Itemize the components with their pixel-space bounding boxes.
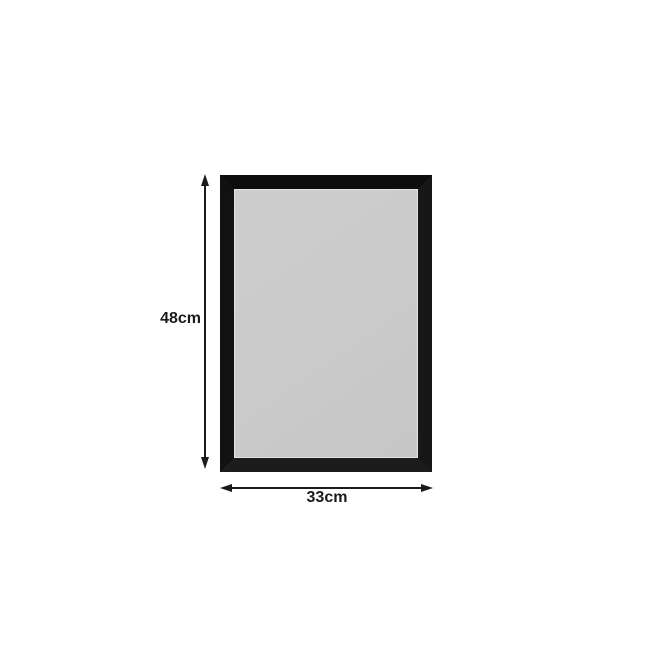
product-dimension-diagram: 48cm 33cm xyxy=(0,0,650,650)
width-dimension-label: 33cm xyxy=(277,490,377,506)
picture-frame xyxy=(220,175,432,472)
height-dimension-label: 48cm xyxy=(111,311,201,327)
frame-surface xyxy=(235,190,417,457)
